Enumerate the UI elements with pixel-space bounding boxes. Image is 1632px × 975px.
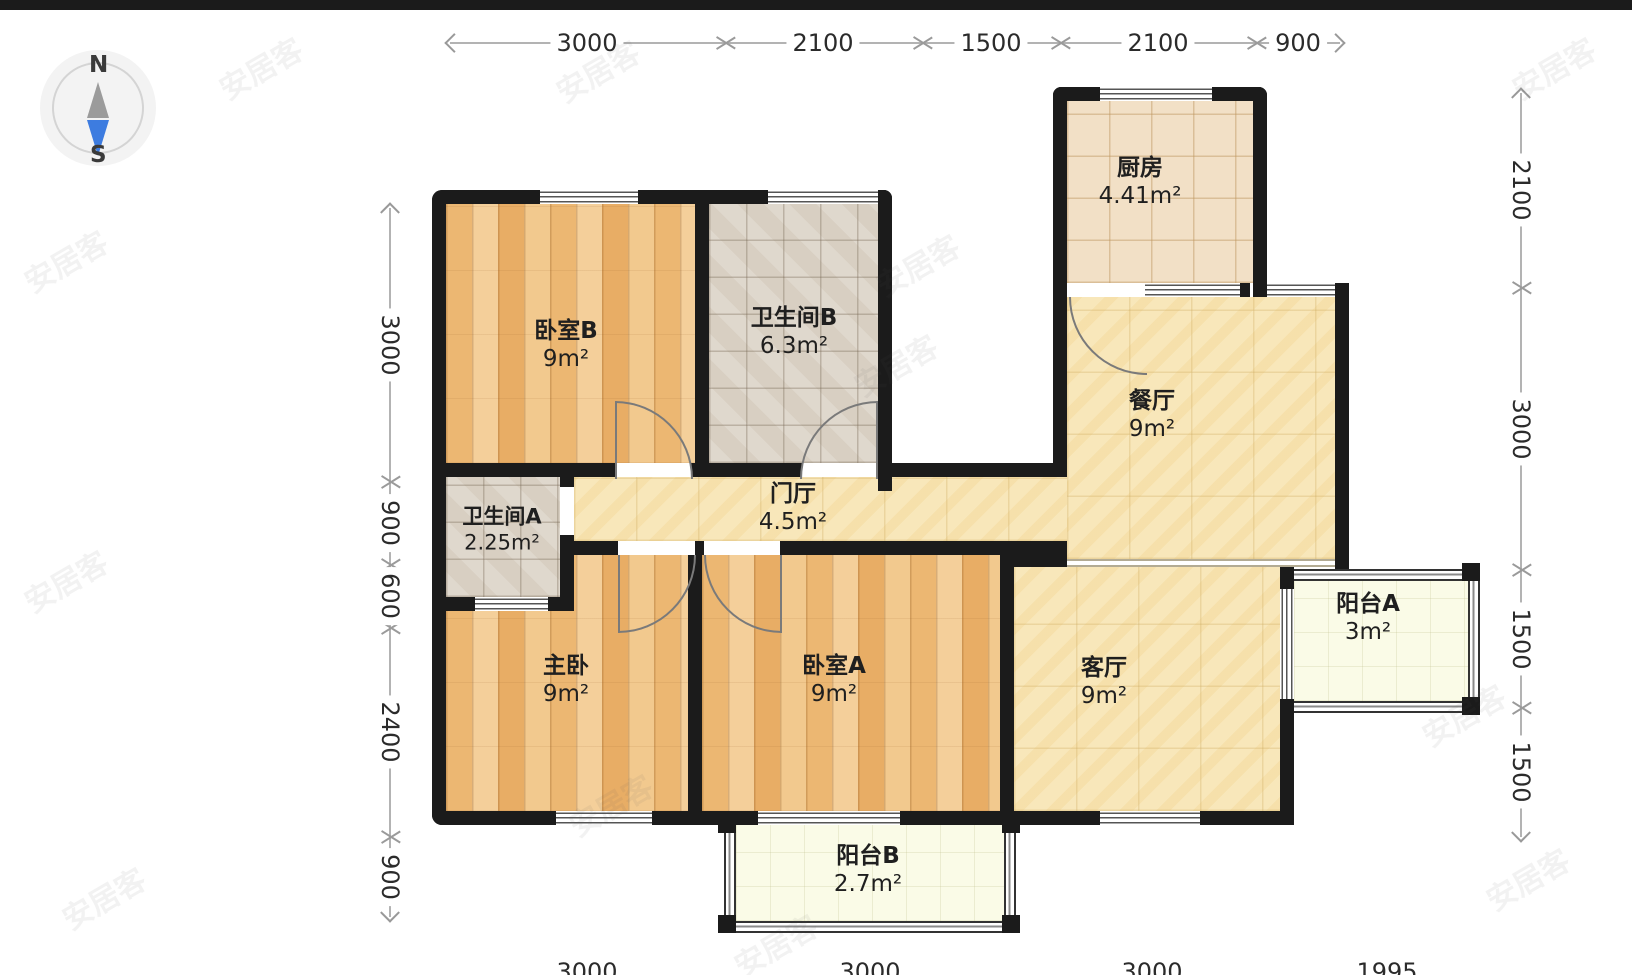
dim-label: 900 xyxy=(376,494,404,552)
wall xyxy=(1053,297,1067,477)
room-area: 9m² xyxy=(543,680,589,708)
room-area: 4.41m² xyxy=(1099,182,1182,210)
room-name: 卫生间B xyxy=(751,304,838,332)
balcony-door-window xyxy=(758,811,900,825)
watermark: 安居客 xyxy=(1477,836,1577,919)
window xyxy=(475,597,548,611)
dim-label: 3000 xyxy=(376,308,404,381)
room-label-bedroom-b: 卧室B 9m² xyxy=(534,317,598,373)
dim-label: 2100 xyxy=(786,29,859,57)
room-label-balcony-b: 阳台B 2.7m² xyxy=(834,842,902,898)
balcony-b-corner xyxy=(718,915,736,933)
window xyxy=(1100,87,1212,101)
door-opening xyxy=(704,541,780,555)
wall xyxy=(1253,87,1267,297)
dim-label: 2400 xyxy=(376,695,404,768)
room-label-bath-a: 卫生间A 2.25m² xyxy=(462,504,541,555)
room-area: 9m² xyxy=(1129,415,1175,443)
room-name: 卫生间A xyxy=(462,504,541,530)
dim-tick xyxy=(1049,32,1071,54)
dim-tick xyxy=(1245,32,1267,54)
window xyxy=(1267,283,1335,297)
room-area: 9m² xyxy=(802,680,866,708)
compass-north-needle-icon xyxy=(87,82,109,118)
dim-label: 3000 xyxy=(1507,392,1535,465)
dim-tick xyxy=(714,32,736,54)
dim-tick xyxy=(1510,277,1532,299)
wall xyxy=(695,190,709,477)
floor-living xyxy=(1014,567,1280,811)
wall xyxy=(1053,87,1067,297)
top-border-bar xyxy=(0,0,1632,10)
wall xyxy=(1000,541,1014,825)
wall xyxy=(1240,283,1250,297)
dim-tick xyxy=(1510,697,1532,719)
compass: N S xyxy=(40,50,160,170)
watermark: 安居客 xyxy=(1503,25,1603,108)
watermark: 安居客 xyxy=(15,538,115,621)
dim-label: 3000 xyxy=(1115,958,1188,975)
balcony-door-window xyxy=(1280,589,1294,699)
wall xyxy=(432,190,446,825)
dim-label: 3000 xyxy=(550,958,623,975)
room-name: 阳台A xyxy=(1336,590,1400,618)
compass-south-label: S xyxy=(90,142,107,168)
wall xyxy=(560,463,574,611)
room-label-living: 客厅 9m² xyxy=(1081,654,1127,710)
wall xyxy=(1000,541,1067,567)
dim-label: 600 xyxy=(376,567,404,625)
room-label-balcony-a: 阳台A 3m² xyxy=(1336,590,1400,646)
room-area: 9m² xyxy=(1081,682,1127,710)
dim-label: 1500 xyxy=(1507,735,1535,808)
room-area: 2.25m² xyxy=(462,530,541,556)
balcony-b-corner xyxy=(1002,819,1020,833)
dim-label: 900 xyxy=(376,848,404,906)
dim-arrow-right-icon xyxy=(1326,33,1346,53)
room-label-bath-b: 卫生间B 6.3m² xyxy=(751,304,838,360)
room-label-hall: 门厅 4.5m² xyxy=(759,480,827,536)
watermark: 安居客 xyxy=(15,218,115,301)
wall xyxy=(432,463,1067,477)
dim-label: 2100 xyxy=(1121,29,1194,57)
wall xyxy=(1335,283,1349,573)
room-name: 卧室A xyxy=(802,652,866,680)
room-name: 阳台B xyxy=(834,842,902,870)
dim-tick xyxy=(379,471,401,493)
dim-label: 3000 xyxy=(833,958,906,975)
room-name: 餐厅 xyxy=(1129,387,1175,415)
door-opening xyxy=(618,541,695,555)
dim-tick xyxy=(1510,559,1532,581)
watermark: 安居客 xyxy=(210,25,310,108)
window xyxy=(768,190,878,204)
room-area: 3m² xyxy=(1336,618,1400,646)
dim-arrow-left-icon xyxy=(444,33,464,53)
room-name: 主卧 xyxy=(543,652,589,680)
floorplan-canvas: N S xyxy=(0,0,1632,975)
room-label-dining: 餐厅 9m² xyxy=(1129,387,1175,443)
room-label-kitchen: 厨房 4.41m² xyxy=(1099,154,1182,210)
dim-tick xyxy=(911,32,933,54)
compass-north-label: N xyxy=(89,52,108,78)
balcony-b-wall xyxy=(1004,825,1016,921)
dim-label: 1500 xyxy=(1507,602,1535,675)
balcony-a-corner xyxy=(1462,563,1480,581)
balcony-b-corner xyxy=(1002,915,1020,933)
dining-living-transition xyxy=(1067,559,1335,567)
room-area: 6.3m² xyxy=(751,332,838,360)
wall xyxy=(688,555,702,825)
window xyxy=(540,190,638,204)
room-label-master: 主卧 9m² xyxy=(543,652,589,708)
dim-label: 1995 xyxy=(1350,958,1423,975)
door-opening xyxy=(560,487,574,535)
dim-arrow-down-icon xyxy=(1511,823,1531,843)
balcony-a-wall xyxy=(1294,569,1480,581)
balcony-b-corner xyxy=(718,819,736,833)
room-name: 门厅 xyxy=(759,480,827,508)
dim-label: 1500 xyxy=(954,29,1027,57)
room-label-bedroom-a: 卧室A 9m² xyxy=(802,652,866,708)
room-area: 2.7m² xyxy=(834,870,902,898)
room-name: 客厅 xyxy=(1081,654,1127,682)
window xyxy=(1145,283,1240,297)
window xyxy=(1100,811,1200,825)
dim-tick xyxy=(379,826,401,848)
wall xyxy=(1053,283,1067,297)
watermark: 安居客 xyxy=(53,855,153,938)
room-area: 4.5m² xyxy=(759,508,827,536)
dim-label: 2100 xyxy=(1507,153,1535,226)
balcony-b-wall xyxy=(724,825,736,921)
room-area: 9m² xyxy=(534,345,598,373)
room-name: 卧室B xyxy=(534,317,598,345)
room-name: 厨房 xyxy=(1099,154,1182,182)
dim-label: 900 xyxy=(1269,29,1327,57)
dim-arrow-up-icon xyxy=(380,202,400,222)
